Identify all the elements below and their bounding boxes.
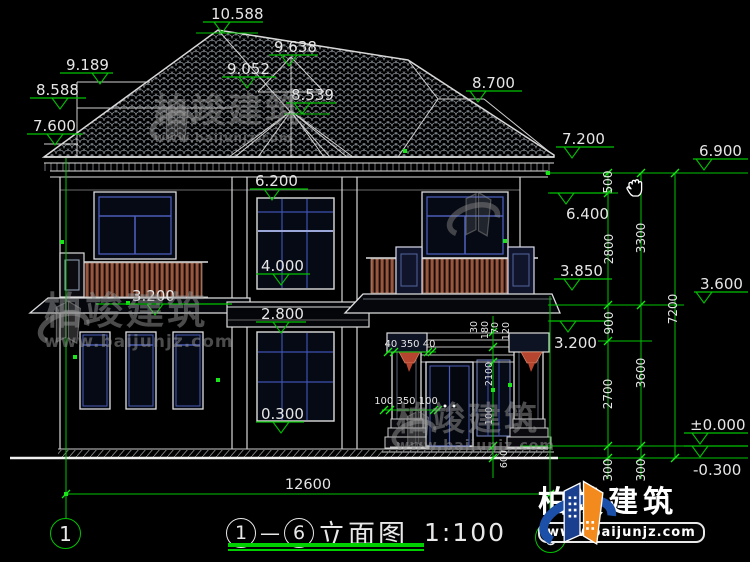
elevation-label: 8.700 [472,74,515,92]
chain-dim-label: 7200 [666,294,680,325]
elevation-marker-triangle [558,193,574,204]
brand-logo-block[interactable]: 柏竣建筑 www.baijunjz.com [536,468,750,562]
grid-bubble-1-label: 1 [59,522,72,546]
elevation-label: 9.638 [274,38,317,56]
cad-canvas[interactable]: 10.5889.6389.0528.5399.1898.5887.6008.70… [0,0,750,562]
eave-cornice [44,157,554,190]
elevation-marker-triangle [52,98,68,109]
elevation-label: 3.850 [560,262,603,280]
elevation-label: 10.588 [211,5,264,23]
porch-dim-label: 30 [469,321,480,333]
porch-dim-label: 70 [490,322,501,334]
elevation-label: 7.200 [562,130,605,148]
elevation-marker-triangle [696,292,712,303]
elevation-label: 3.600 [700,275,743,293]
chain-dim-label: 3300 [634,223,648,254]
chain-dim-label: 3600 [634,358,648,389]
porch-column-left [385,333,429,448]
title-separator: — [257,521,283,545]
elevation-marker-triangle [692,433,708,444]
title-scale: 1:100 [424,518,506,547]
brand-logo-icon [536,468,624,560]
porch-dim-label: 2100 [484,362,495,386]
elevation-label: 6.200 [255,172,298,190]
elevation-marker-triangle [692,446,708,457]
linear-dim-label: 12600 [285,477,331,493]
elevation-label: 9.052 [227,60,270,78]
elevation-marker-triangle [470,91,486,102]
elevation-label: 7.600 [33,117,76,135]
title-bubble-start-label: 1 [235,522,247,544]
elevation-label: 8.539 [291,86,334,104]
elevation-marker-triangle [273,422,289,433]
elevation-label: 3.200 [554,334,597,352]
porch-roof [345,294,560,313]
porch-dim-label: 120 [501,322,512,340]
chain-dim-label: 500 [601,171,615,194]
elevation-label: ±0.000 [690,416,746,434]
porch-dim-label: 100 [484,407,495,425]
elevation-marker-triangle [696,159,712,170]
elevation-marker-triangle [560,321,576,332]
chain-dim-label: 2800 [602,234,616,265]
title-underline-thick [228,543,424,547]
linear-dim-label: 100 350 100 [374,396,438,407]
entrance-porch [382,333,554,452]
grid-bubble-1: 1 [50,518,81,549]
elevation-label: 8.588 [36,81,79,99]
chain-dim-label: 2700 [601,379,615,410]
title-bubble-end-label: 6 [293,522,305,544]
pan-hand-cursor [627,180,642,196]
elevation-label: 3.200 [132,287,175,305]
porch-dim-label: 600 [499,450,510,468]
elevation-label: 6.900 [699,142,742,160]
linear-dim-label: 40 350 40 [385,339,436,350]
elevation-marker-triangle [564,279,580,290]
elevation-label: 6.400 [566,205,609,223]
elevation-marker-triangle [47,134,63,145]
elevation-label: 4.000 [261,257,304,275]
elevation-marker-triangle [564,147,580,158]
porch-column-right [507,333,551,448]
chain-dim-label: 900 [602,312,616,335]
title-underline-thin [228,549,424,551]
ground [10,449,558,458]
elevation-label: 9.189 [66,56,109,74]
elevation-label: 2.800 [261,305,304,323]
elevation-label: 0.300 [261,405,304,423]
